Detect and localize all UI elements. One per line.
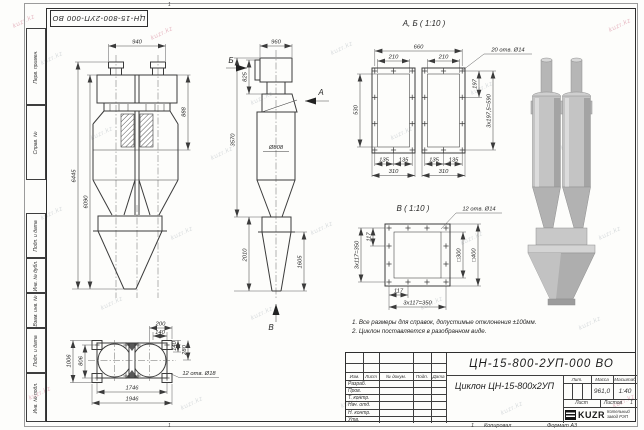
holes-label-plan: 12 отв. Ø18 <box>182 371 216 377</box>
doc-number: ЦН-15-800-2УП-000 ВО <box>446 353 637 375</box>
dim-diameter-808: Ø808 <box>268 145 284 151</box>
dim-1605: 1605 <box>298 255 304 269</box>
dim-825: 825 <box>243 71 249 81</box>
title-block: Изм. Лист № докум. Подп. Дата Разраб. Пр… <box>345 352 636 422</box>
col-dokum: № докум. <box>379 372 413 380</box>
dim-210-left: 210 <box>388 55 399 61</box>
dim-square-400: □400 <box>472 248 478 262</box>
row-n-kontr: Н. контр. <box>346 410 371 416</box>
dim-140-top: 140 <box>155 330 165 336</box>
front-view: 940 888 6445 6090 <box>72 40 191 299</box>
dim-3x197: 3x197,5=590 <box>487 93 493 127</box>
product-title: Циклон ЦН-15-800х2УП <box>446 377 563 395</box>
dim-117-bottom: 117 <box>394 289 404 295</box>
dim-888: 888 <box>182 106 188 116</box>
dim-310: 310 <box>389 169 399 175</box>
arrow-label-v: В <box>268 323 274 332</box>
sheets-label: Листов <box>600 399 626 407</box>
holes-label-ab: 20 отв. Ø14 <box>490 48 524 54</box>
view-v: В ( 1:10 ) 12 отв. Ø14 3x117=350 117 <box>355 204 503 310</box>
dim-6090: 6090 <box>84 195 90 209</box>
copied-label: Копировал <box>484 423 511 429</box>
dim-1746: 1746 <box>126 386 140 392</box>
dim-140-right: 140 <box>172 340 178 350</box>
company-name: Котельный завод РЭП <box>607 410 630 419</box>
dim-960: 960 <box>271 40 281 46</box>
company-logo-text: KUZR <box>578 410 605 420</box>
row-prov: Пров. <box>346 388 361 394</box>
dim-3x117-bottom: 3x117=350 <box>403 301 432 307</box>
dim-806: 806 <box>79 355 85 365</box>
format-label: Формат А3 <box>547 423 577 429</box>
view-ab-title: А, Б ( 1:10 ) <box>402 19 446 28</box>
side-view: Ø808 960 825 3570 2010 <box>226 40 329 333</box>
lit-label: Лит. <box>563 375 591 383</box>
dim-1946: 1946 <box>126 397 140 403</box>
scale-value: 1:40 <box>613 383 637 399</box>
arrow-label-b: Б <box>228 56 233 65</box>
row-utv: Утв. <box>346 417 359 423</box>
view-ab: А, Б ( 1:10 ) 660 210 <box>354 19 533 177</box>
col-podp: Подп. <box>413 372 431 380</box>
zone-digit-top: 1 <box>168 2 171 8</box>
dim-3x117-left: 3x117=350 <box>355 240 361 269</box>
company-name-line2: завод РЭП <box>607 415 630 420</box>
arrow-label-a: А <box>317 88 323 97</box>
col-list: Лист <box>363 372 379 380</box>
dim-117-left: 117 <box>367 232 373 242</box>
row-razrab: Разраб. <box>346 381 366 387</box>
row-nach-otd: Нач. отд. <box>346 402 370 408</box>
zone-digit-bottom-center: 1 <box>471 423 474 429</box>
dim-1006: 1006 <box>67 354 73 368</box>
dim-660: 660 <box>414 45 424 51</box>
dim-280: 280 <box>182 344 188 355</box>
dim-530: 530 <box>354 104 360 114</box>
plan-view: 12 отв. Ø18 1006 806 1746 1946 200 <box>67 322 220 406</box>
col-data: Дата <box>431 372 446 380</box>
dim-310: 310 <box>439 169 449 175</box>
row-t-kontr: Т. контр. <box>346 395 370 401</box>
dim-197: 197 <box>473 78 479 88</box>
note-line-1: 1. Все размеры для справок, допустимые о… <box>352 318 537 327</box>
drawing-sheet: kuzr.kzkuzr.kzkuzr.kzkuzr.kzkuzr.kzkuzr.… <box>0 0 644 430</box>
dim-210-right: 210 <box>438 55 449 61</box>
dim-square-300: □300 <box>457 248 463 262</box>
mass-label: Масса <box>591 375 613 383</box>
view-v-title: В ( 1:10 ) <box>397 204 430 213</box>
dim-2010: 2010 <box>243 248 249 263</box>
col-izm: Изм. <box>346 372 363 380</box>
notes: 1. Все размеры для справок, допустимые о… <box>352 318 537 336</box>
dim-940: 940 <box>132 40 142 46</box>
dim-200: 200 <box>155 322 166 328</box>
holes-label-v: 12 отв. Ø14 <box>462 207 495 213</box>
dim-6445: 6445 <box>72 169 78 183</box>
dim-135: 135 <box>429 158 439 164</box>
company-cell: KUZR Котельный завод РЭП <box>563 407 636 422</box>
dim-135: 135 <box>399 158 409 164</box>
scale-label: Масштаб <box>613 375 637 383</box>
sheets-value: 1 <box>626 399 637 407</box>
dim-3570: 3570 <box>231 133 237 147</box>
mass-value: 961,0 <box>591 383 613 399</box>
render-3d <box>528 58 595 305</box>
dim-135: 135 <box>379 158 389 164</box>
note-line-2: 2. Циклон поставляется в разобранном вид… <box>352 327 537 336</box>
dim-135: 135 <box>449 158 459 164</box>
sheet-label: Лист <box>563 399 600 407</box>
zone-digit-bottom: 1 <box>168 423 171 429</box>
company-logo-icon <box>565 410 576 420</box>
